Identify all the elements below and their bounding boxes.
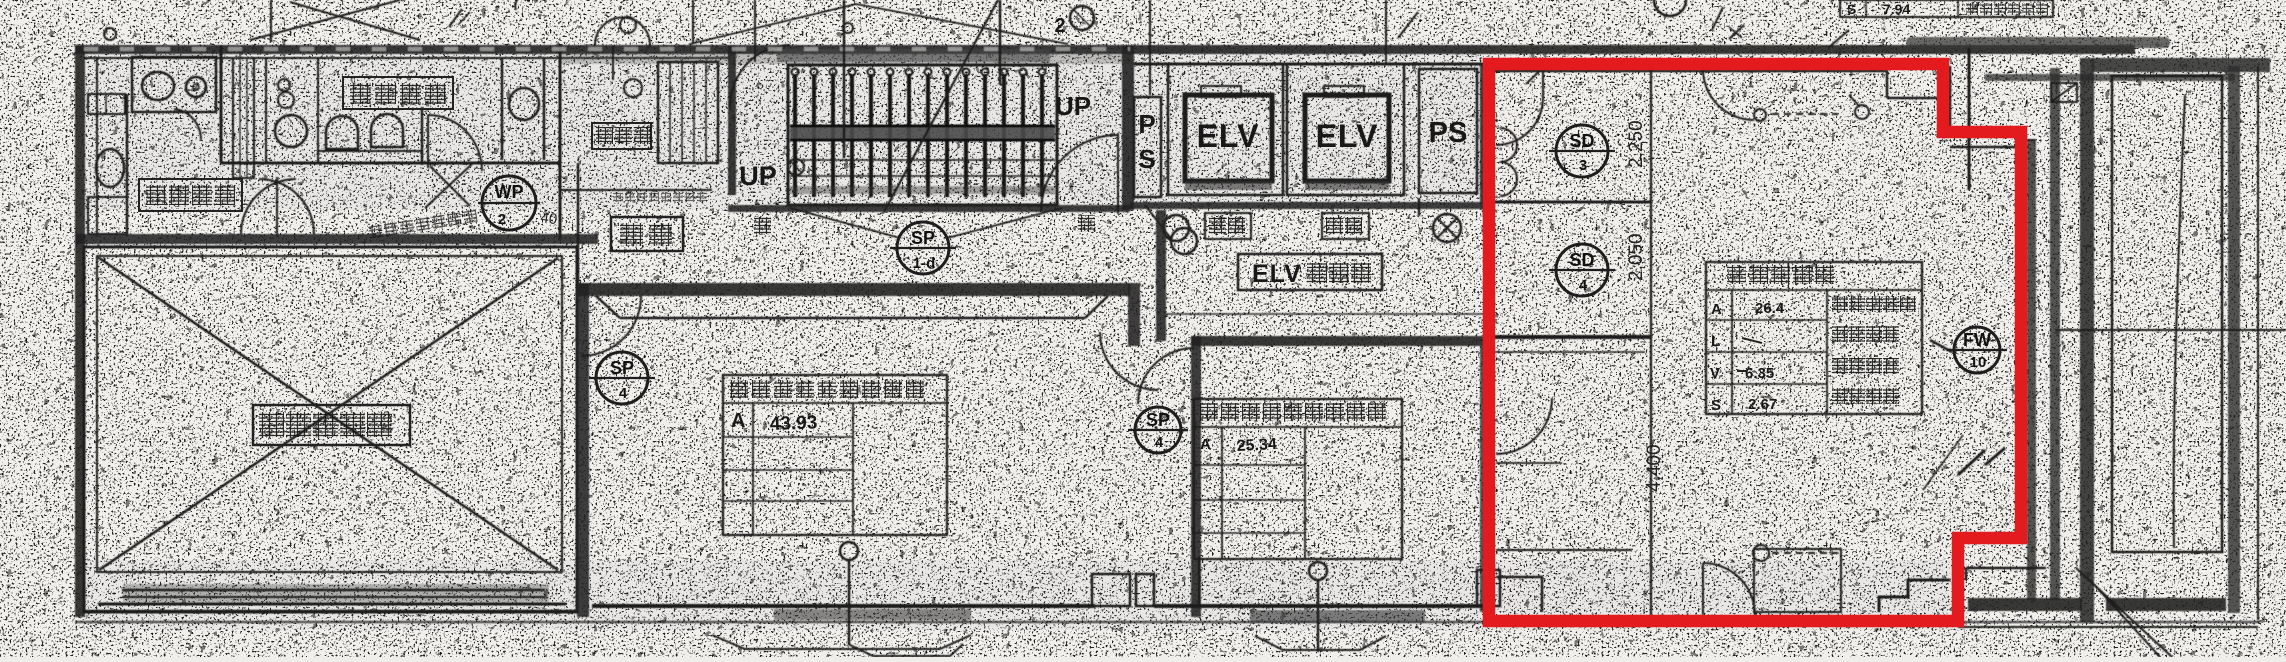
- svg-text:40: 40: [539, 209, 558, 228]
- svg-text:7.94: 7.94: [1883, 1, 1910, 17]
- svg-text:S: S: [1847, 1, 1856, 17]
- svg-text:A: A: [731, 410, 745, 432]
- svg-text:PS: PS: [1429, 117, 1468, 149]
- svg-text:SP: SP: [911, 228, 935, 248]
- svg-text:2: 2: [1054, 15, 1065, 37]
- svg-text:WP: WP: [495, 182, 524, 202]
- svg-text:S: S: [1711, 397, 1721, 414]
- svg-text:4: 4: [1579, 277, 1588, 294]
- svg-text:1-d: 1-d: [913, 255, 936, 272]
- svg-text:ELV: ELV: [1316, 118, 1379, 154]
- svg-text:ELV: ELV: [1252, 260, 1302, 288]
- svg-text:SP: SP: [610, 358, 634, 378]
- svg-text:4,400: 4,400: [1644, 444, 1665, 492]
- svg-text:6.35: 6.35: [1745, 365, 1774, 382]
- svg-text:ELV: ELV: [1197, 118, 1260, 154]
- svg-text:UP: UP: [1055, 91, 1091, 121]
- svg-text:2,250: 2,250: [1626, 120, 1647, 168]
- svg-text:FW: FW: [1963, 330, 1991, 350]
- svg-text:4: 4: [1155, 434, 1164, 451]
- svg-text:UP: UP: [739, 161, 777, 191]
- svg-text:A: A: [1200, 436, 1211, 453]
- svg-text:2: 2: [498, 211, 506, 228]
- svg-text:10: 10: [1970, 354, 1987, 371]
- svg-text:SD: SD: [1569, 131, 1594, 151]
- svg-text:25.34: 25.34: [1236, 436, 1277, 455]
- svg-text:26.4: 26.4: [1755, 300, 1785, 317]
- svg-text:SP: SP: [1146, 410, 1170, 430]
- svg-text:S: S: [1138, 144, 1155, 174]
- svg-text:2,050: 2,050: [1626, 233, 1647, 281]
- svg-text:V: V: [1710, 365, 1720, 382]
- svg-text:A: A: [1711, 301, 1722, 318]
- svg-text:3: 3: [1579, 157, 1587, 174]
- svg-text:2.67: 2.67: [1748, 396, 1777, 413]
- svg-text:L: L: [1711, 333, 1720, 350]
- svg-text:43.93: 43.93: [769, 412, 817, 435]
- svg-text:P: P: [1138, 109, 1155, 139]
- svg-text:SD: SD: [1569, 250, 1594, 270]
- svg-text:4: 4: [619, 385, 628, 402]
